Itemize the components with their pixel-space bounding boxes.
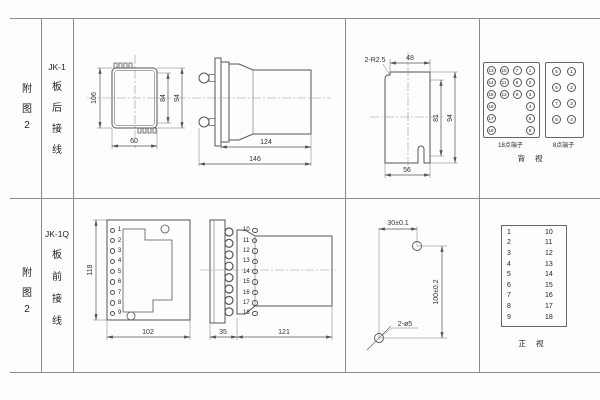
row2-model-label: JK-1Q 板 前 接 线	[42, 229, 72, 327]
terminal-circle: 12	[500, 90, 509, 99]
t8-left-col: 5678	[552, 67, 561, 124]
terminal-number: 16	[243, 287, 267, 297]
terminal-table-number: 2	[507, 238, 511, 249]
label-front-view: 正 视	[491, 338, 575, 349]
t18-col4: 123456	[526, 66, 535, 135]
terminal-circle: 15	[487, 90, 496, 99]
terminal-circle: 1	[526, 66, 535, 75]
row2-wiring-char-3: 接	[52, 290, 62, 305]
terminal-circle: 17	[487, 114, 496, 123]
jk1-front-side-view-drawing: 106 84 94 60 124 146	[73, 18, 345, 198]
row1-figure-label: 附 图 2	[14, 80, 40, 131]
label-2-dia5: 2-ø5	[398, 321, 413, 328]
row1-model-name: JK-1	[48, 62, 65, 72]
terminal-number: 15	[243, 277, 267, 287]
terminal-table-number: 6	[507, 280, 511, 291]
label-18pt-terminals: 18点端子	[481, 140, 540, 149]
terminal-number: 3	[110, 246, 134, 256]
terminal-circle: 16	[487, 102, 496, 111]
terminal-number: 2	[110, 235, 134, 245]
dim-100: 100±0.2	[433, 279, 440, 304]
jk1-side-outline	[199, 58, 311, 146]
jk1-front-extension-lines	[97, 68, 185, 149]
drill-holes	[367, 242, 422, 351]
terminal-table-number: 14	[545, 269, 553, 280]
jk1q-drilling-pattern-drawing: 30±0.1 100±0.2 2-ø5	[345, 198, 479, 372]
jk1q-right-terminal-list: 101112131415161718	[243, 225, 267, 319]
jk1q-terminal-table-panel: 123456789 101112131415161718 正 视	[479, 198, 600, 372]
row2-wiring-char-4: 线	[52, 312, 62, 327]
terminal-table-number: 1	[507, 227, 511, 238]
row2-wiring-char-1: 板	[52, 246, 62, 261]
cutout-outline	[385, 72, 430, 163]
terminal-number: 1	[110, 225, 134, 235]
terminal-number: 7	[110, 287, 134, 297]
terminal-number: 13	[243, 256, 267, 266]
terminal-circle: 5	[552, 67, 561, 76]
terminal-table-number: 7	[507, 291, 511, 302]
row1-wiring-char-4: 线	[52, 141, 62, 156]
row1-wiring-char-2: 后	[52, 99, 62, 114]
terminal-circle: 8	[513, 78, 522, 87]
terminal-circle: 3	[526, 90, 535, 99]
terminal-circle: 4	[567, 115, 576, 124]
terminal-circle: 6	[526, 126, 535, 135]
terminal-number: 17	[243, 298, 267, 308]
cutout-centerlines	[370, 52, 445, 170]
terminal-circle: 10	[500, 66, 509, 75]
terminal-table-number: 10	[545, 227, 553, 238]
t8-right-col: 1234	[567, 67, 576, 124]
terminal-number: 9	[110, 308, 134, 318]
terminal-circle: 7	[552, 99, 561, 108]
row2-fig-char-3: 2	[24, 304, 30, 315]
dim-84: 84	[160, 94, 167, 102]
row1-fig-char-2: 图	[22, 100, 32, 115]
row2-figure-label: 附 图 2	[14, 264, 40, 315]
terminal-block-8pt: 5678 1234	[545, 62, 584, 138]
row2-model-name: JK-1Q	[45, 229, 69, 239]
terminal-table-number: 4	[507, 259, 511, 270]
terminal-circle: 7	[513, 66, 522, 75]
dim-106: 106	[91, 92, 98, 104]
dim-94-cutout: 94	[447, 114, 454, 122]
terminal-circle: 5	[526, 114, 535, 123]
dim-48: 48	[406, 55, 414, 62]
terminal-table-number: 13	[545, 259, 553, 270]
row2-wiring-char-2: 前	[52, 268, 62, 283]
terminal-table-number: 12	[545, 248, 553, 259]
terminal-table-right-col: 101112131415161718	[545, 227, 553, 322]
terminal-number: 10	[243, 225, 267, 235]
terminal-circle: 11	[500, 78, 509, 87]
terminal-table-number: 11	[545, 238, 553, 249]
terminal-number: 18	[243, 308, 267, 318]
terminal-number: 12	[243, 246, 267, 256]
label-rear-view: 背 视	[479, 153, 585, 164]
row2-fig-char-2: 图	[22, 284, 32, 299]
dim-81: 81	[433, 114, 440, 122]
dim-118: 118	[87, 264, 94, 275]
cutout-dim-lines	[385, 63, 455, 175]
row1-fig-char-3: 2	[24, 120, 30, 131]
terminal-table-number: 5	[507, 269, 511, 280]
terminal-circle: 8	[552, 115, 561, 124]
row1-wiring-char-3: 接	[52, 120, 62, 135]
jk1q-front-extension-lines	[93, 220, 190, 340]
dimension-drawing-sheet: 附 图 2 JK-1 板 后 接 线	[0, 0, 600, 400]
terminal-circle: 2	[567, 83, 576, 92]
t18-col2: 101112	[500, 66, 509, 99]
terminal-table-number: 9	[507, 312, 511, 323]
label-8pt-terminals: 8点端子	[542, 140, 585, 149]
terminal-number: 11	[243, 235, 267, 245]
jk1-panel-cutout-drawing: 2-R2.5 48 81 94 56	[345, 18, 479, 198]
dim-121: 121	[278, 329, 290, 336]
terminal-circle: 18	[487, 126, 496, 135]
terminal-table-number: 8	[507, 301, 511, 312]
terminal-circle: 4	[526, 102, 535, 111]
row1-wiring-char-1: 板	[52, 78, 62, 93]
terminal-circle: 6	[552, 83, 561, 92]
jk1-rear-terminal-panel: 131415161718 101112 789 123456 5678 1234…	[479, 18, 600, 198]
t18-col3: 789	[513, 66, 522, 99]
terminal-number: 8	[110, 298, 134, 308]
jk1q-side-outline	[210, 220, 332, 323]
terminal-circle: 3	[567, 99, 576, 108]
terminal-circle: 13	[487, 66, 496, 75]
dim-102: 102	[142, 329, 154, 336]
dim-146: 146	[249, 156, 261, 163]
dim-35: 35	[219, 329, 227, 336]
terminal-table-number: 18	[545, 312, 553, 323]
terminal-circle: 1	[567, 67, 576, 76]
terminal-number: 6	[110, 277, 134, 287]
jk1q-left-terminal-list: 123456789	[110, 225, 134, 319]
dim-56: 56	[403, 167, 411, 174]
dim-124: 124	[260, 139, 272, 146]
dim-60: 60	[130, 138, 138, 145]
terminal-number: 4	[110, 256, 134, 266]
dim-94: 94	[174, 94, 181, 102]
jk1q-side-extension-lines	[210, 306, 332, 340]
row2-fig-char-1: 附	[22, 264, 32, 279]
row1-model-label: JK-1 板 后 接 线	[42, 62, 72, 156]
terminal-table-number: 3	[507, 248, 511, 259]
terminal-table-left-col: 123456789	[507, 227, 511, 322]
dim-30: 30±0.1	[387, 220, 408, 227]
terminal-circle: 14	[487, 78, 496, 87]
label-2-r2.5: 2-R2.5	[364, 57, 385, 64]
terminal-number: 14	[243, 267, 267, 277]
terminal-number: 5	[110, 267, 134, 277]
terminal-table-number: 17	[545, 301, 553, 312]
terminal-block-18pt: 131415161718 101112 789 123456	[483, 62, 540, 138]
row1-fig-char-1: 附	[22, 80, 32, 95]
terminal-circle: 9	[513, 90, 522, 99]
terminal-circle: 2	[526, 78, 535, 87]
terminal-table-number: 15	[545, 280, 553, 291]
terminal-table-number: 16	[545, 291, 553, 302]
t18-col1: 131415161718	[487, 66, 496, 135]
table-border-bottom	[10, 372, 600, 373]
